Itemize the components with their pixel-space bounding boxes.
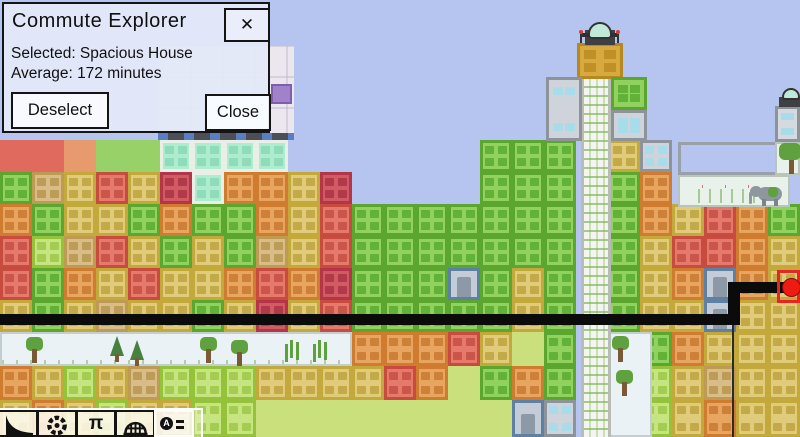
- map-tile-G[interactable]: [512, 236, 544, 268]
- destination-marker-icon: [782, 278, 800, 297]
- map-tile-O[interactable]: [640, 172, 672, 204]
- map-tile-Y[interactable]: [640, 236, 672, 268]
- gear-icon: [44, 413, 71, 437]
- map-tile-Y[interactable]: [736, 400, 768, 437]
- road-curve-icon: [5, 413, 35, 437]
- map-tile-K[interactable]: [160, 172, 192, 204]
- map-tile-Y[interactable]: [128, 172, 160, 204]
- map-tile-L[interactable]: [192, 366, 224, 400]
- map-tile-Y[interactable]: [320, 366, 352, 400]
- map-tile-G[interactable]: [512, 172, 544, 204]
- round-tree-icon: [616, 370, 633, 396]
- green-apartment-right[interactable]: [611, 77, 647, 110]
- pine-tree-icon: [110, 336, 127, 362]
- map-tile-O[interactable]: [736, 204, 768, 236]
- bottom-toolbar: π A: [0, 408, 203, 437]
- map-tile-G[interactable]: [416, 268, 448, 300]
- map-tile-Y[interactable]: [192, 236, 224, 268]
- map-tile-C[interactable]: [224, 140, 256, 172]
- round-tree-icon: [612, 336, 629, 362]
- map-tile-G[interactable]: [480, 204, 512, 236]
- map-tile-C[interactable]: [160, 140, 192, 172]
- map-tile-O[interactable]: [352, 332, 384, 366]
- map-tile-Y[interactable]: [64, 204, 96, 236]
- sprig-tree-icon: [318, 340, 335, 366]
- map-tile-G[interactable]: [544, 366, 576, 400]
- map-tile-G[interactable]: [352, 268, 384, 300]
- map-tile-O[interactable]: [640, 204, 672, 236]
- map-tile-G[interactable]: [608, 204, 640, 236]
- map-tile-O[interactable]: [416, 332, 448, 366]
- map-tile-Gf[interactable]: [128, 140, 160, 172]
- map-tile-Y[interactable]: [288, 172, 320, 204]
- pi-icon: π: [78, 412, 114, 435]
- map-tile-E[interactable]: [512, 400, 544, 437]
- observatory-dome[interactable]: [588, 22, 612, 39]
- map-tile-Y[interactable]: [768, 300, 800, 332]
- map-tile-Y[interactable]: [160, 268, 192, 300]
- map-tile-G[interactable]: [384, 204, 416, 236]
- map-tile-R[interactable]: [96, 236, 128, 268]
- map-tile-G[interactable]: [32, 204, 64, 236]
- map-tile-O[interactable]: [0, 366, 32, 400]
- map-tile-G[interactable]: [480, 236, 512, 268]
- map-tile-Y[interactable]: [768, 332, 800, 366]
- map-tile-Y[interactable]: [736, 332, 768, 366]
- map-tile-Rf[interactable]: [0, 140, 32, 172]
- map-tile-gr[interactable]: [288, 400, 320, 437]
- dome-tool-button[interactable]: [115, 410, 155, 437]
- map-tile-O[interactable]: [384, 332, 416, 366]
- dialog-title: Commute Explorer: [12, 10, 187, 33]
- map-tile-G[interactable]: [608, 268, 640, 300]
- map-tile-G[interactable]: [384, 268, 416, 300]
- antenna-icon: [617, 34, 619, 43]
- map-tile-K[interactable]: [320, 268, 352, 300]
- map-tile-O[interactable]: [256, 172, 288, 204]
- map-tile-R[interactable]: [704, 236, 736, 268]
- map-tile-Y[interactable]: [768, 366, 800, 400]
- round-tree-icon: [231, 340, 248, 366]
- map-tile-T[interactable]: [128, 366, 160, 400]
- map-tile-Y[interactable]: [480, 332, 512, 366]
- map-tile-R[interactable]: [256, 268, 288, 300]
- map-tile-gr[interactable]: [352, 400, 384, 437]
- map-tile-G[interactable]: [480, 366, 512, 400]
- map-tile-G[interactable]: [224, 236, 256, 268]
- deselect-button[interactable]: Deselect: [11, 92, 109, 129]
- list-dash-icon: [176, 420, 184, 423]
- map-tile-O[interactable]: [672, 332, 704, 366]
- tree-icon: [779, 143, 800, 160]
- map-tile-gr[interactable]: [448, 400, 480, 437]
- map-tile-Y[interactable]: [512, 268, 544, 300]
- map-tile-T[interactable]: [64, 236, 96, 268]
- map-tile-R[interactable]: [320, 236, 352, 268]
- map-tile-G[interactable]: [384, 236, 416, 268]
- map-tile-G[interactable]: [512, 204, 544, 236]
- map-tile-R[interactable]: [448, 332, 480, 366]
- map-tile-G[interactable]: [544, 204, 576, 236]
- map-tile-G[interactable]: [160, 236, 192, 268]
- map-tile-O[interactable]: [64, 268, 96, 300]
- map-tile-L[interactable]: [160, 366, 192, 400]
- right-tower-building[interactable]: [775, 106, 800, 142]
- gear-tool-button[interactable]: [37, 410, 77, 437]
- map-tile-Y[interactable]: [64, 172, 96, 204]
- vertical-farm-shaft[interactable]: [581, 77, 611, 437]
- map-tile-Y[interactable]: [288, 236, 320, 268]
- map-tile-R[interactable]: [128, 268, 160, 300]
- map-tile-gr[interactable]: [256, 400, 288, 437]
- map-tile-Y[interactable]: [96, 204, 128, 236]
- gray-apartment-left[interactable]: [546, 77, 582, 141]
- map-tile-T[interactable]: [32, 172, 64, 204]
- map-tile-Y[interactable]: [608, 140, 640, 172]
- map-tile-G[interactable]: [128, 204, 160, 236]
- map-tile-O[interactable]: [672, 268, 704, 300]
- map-tile-R[interactable]: [384, 366, 416, 400]
- map-tile-G[interactable]: [352, 204, 384, 236]
- map-tile-G[interactable]: [768, 204, 800, 236]
- round-tree-icon: [200, 337, 217, 363]
- map-tile-gr[interactable]: [320, 400, 352, 437]
- map-tile-Of[interactable]: [64, 140, 96, 172]
- map-tile-G[interactable]: [544, 268, 576, 300]
- map-tile-Y[interactable]: [192, 268, 224, 300]
- game-screen: Commute Explorer ✕ Selected: Spacious Ho…: [0, 0, 800, 437]
- selected-building-text: Selected: Spacious House: [11, 45, 193, 63]
- road-tool-button[interactable]: [0, 410, 38, 437]
- average-commute-text: Average: 172 minutes: [11, 65, 162, 83]
- bush-icon: [768, 187, 778, 197]
- map-tile-gr[interactable]: [448, 366, 480, 400]
- map-tile-L[interactable]: [224, 400, 256, 437]
- gray-apartment-right[interactable]: [611, 110, 647, 141]
- map-tile-G[interactable]: [352, 236, 384, 268]
- map-tile-R[interactable]: [0, 236, 32, 268]
- map-tile-G[interactable]: [224, 204, 256, 236]
- map-tile-G[interactable]: [0, 172, 32, 204]
- map-tile-G[interactable]: [480, 268, 512, 300]
- commute-explorer-dialog: Commute Explorer ✕ Selected: Spacious Ho…: [2, 2, 270, 133]
- map-tile-L[interactable]: [64, 366, 96, 400]
- label-a-icon: A: [160, 417, 173, 430]
- map-tile-G[interactable]: [544, 172, 576, 204]
- round-tree-icon: [26, 337, 43, 363]
- sprig-tree-icon: [290, 340, 307, 366]
- antenna-icon: [580, 34, 582, 43]
- map-tile-gr[interactable]: [512, 332, 544, 366]
- map-tile-O[interactable]: [288, 268, 320, 300]
- map-tile-O[interactable]: [512, 366, 544, 400]
- map-tile-G[interactable]: [480, 140, 512, 172]
- explore-tool-button[interactable]: A: [154, 410, 194, 437]
- map-tile-R[interactable]: [96, 172, 128, 204]
- map-tile-C[interactable]: [192, 140, 224, 172]
- map-tile-Y[interactable]: [736, 300, 768, 332]
- map-tile-L[interactable]: [32, 236, 64, 268]
- map-tile-gr[interactable]: [384, 400, 416, 437]
- map-tile-R[interactable]: [0, 268, 32, 300]
- close-button[interactable]: Close: [205, 94, 271, 131]
- map-tile-Y[interactable]: [352, 366, 384, 400]
- map-tile-G[interactable]: [192, 204, 224, 236]
- list-dash-icon: [176, 426, 184, 429]
- map-tile-Y[interactable]: [128, 236, 160, 268]
- map-tile-R[interactable]: [704, 204, 736, 236]
- map-tile-G[interactable]: [480, 172, 512, 204]
- map-tile-Y[interactable]: [672, 366, 704, 400]
- map-tile-Y[interactable]: [768, 236, 800, 268]
- map-tile-G[interactable]: [544, 140, 576, 172]
- map-tile-G[interactable]: [512, 140, 544, 172]
- right-observatory-dome[interactable]: [782, 88, 800, 100]
- map-tile-O[interactable]: [0, 204, 32, 236]
- map-tile-Y[interactable]: [288, 366, 320, 400]
- map-tile-W[interactable]: [544, 400, 576, 437]
- sky-room[interactable]: [678, 142, 782, 175]
- map-tile-O[interactable]: [224, 268, 256, 300]
- map-tile-W[interactable]: [640, 140, 672, 172]
- dialog-close-x-button[interactable]: ✕: [224, 8, 270, 42]
- elephant-icon: [746, 183, 786, 207]
- map-tile-Rf[interactable]: [32, 140, 64, 172]
- map-tile-C[interactable]: [192, 172, 224, 204]
- map-tile-Y[interactable]: [768, 400, 800, 437]
- map-tile-Y[interactable]: [256, 366, 288, 400]
- map-tile-gr[interactable]: [416, 400, 448, 437]
- dome-icon: [122, 413, 149, 437]
- map-tile-Y[interactable]: [96, 268, 128, 300]
- map-tile-Y[interactable]: [640, 268, 672, 300]
- map-tile-gr[interactable]: [480, 400, 512, 437]
- map-tile-Y[interactable]: [672, 400, 704, 437]
- map-tile-Y[interactable]: [96, 366, 128, 400]
- map-tile-R[interactable]: [672, 236, 704, 268]
- map-tile-O[interactable]: [736, 236, 768, 268]
- map-tile-G[interactable]: [608, 236, 640, 268]
- map-tile-G[interactable]: [448, 204, 480, 236]
- structure-tool-button[interactable]: π: [76, 410, 116, 437]
- map-tile-O[interactable]: [416, 366, 448, 400]
- map-tile-G[interactable]: [416, 236, 448, 268]
- map-tile-Gf[interactable]: [96, 140, 128, 172]
- map-tile-C[interactable]: [256, 140, 288, 172]
- pine-tree-icon: [130, 340, 147, 366]
- map-tile-O[interactable]: [224, 172, 256, 204]
- map-tile-Y[interactable]: [672, 204, 704, 236]
- map-tile-G[interactable]: [544, 236, 576, 268]
- map-tile-G[interactable]: [32, 268, 64, 300]
- tower-gold-floors[interactable]: [577, 43, 623, 79]
- commute-route-segment: [0, 314, 740, 325]
- map-tile-G[interactable]: [608, 172, 640, 204]
- map-tile-Y[interactable]: [288, 204, 320, 236]
- map-tile-R[interactable]: [320, 204, 352, 236]
- map-tile-O[interactable]: [160, 204, 192, 236]
- map-tile-G[interactable]: [544, 332, 576, 366]
- map-tile-T[interactable]: [256, 236, 288, 268]
- map-tile-Y[interactable]: [32, 366, 64, 400]
- map-tile-O[interactable]: [256, 204, 288, 236]
- map-tile-L[interactable]: [224, 366, 256, 400]
- map-tile-G[interactable]: [416, 204, 448, 236]
- map-tile-E[interactable]: [448, 268, 480, 300]
- map-tile-Y[interactable]: [736, 366, 768, 400]
- map-tile-G[interactable]: [448, 236, 480, 268]
- map-tile-K[interactable]: [320, 172, 352, 204]
